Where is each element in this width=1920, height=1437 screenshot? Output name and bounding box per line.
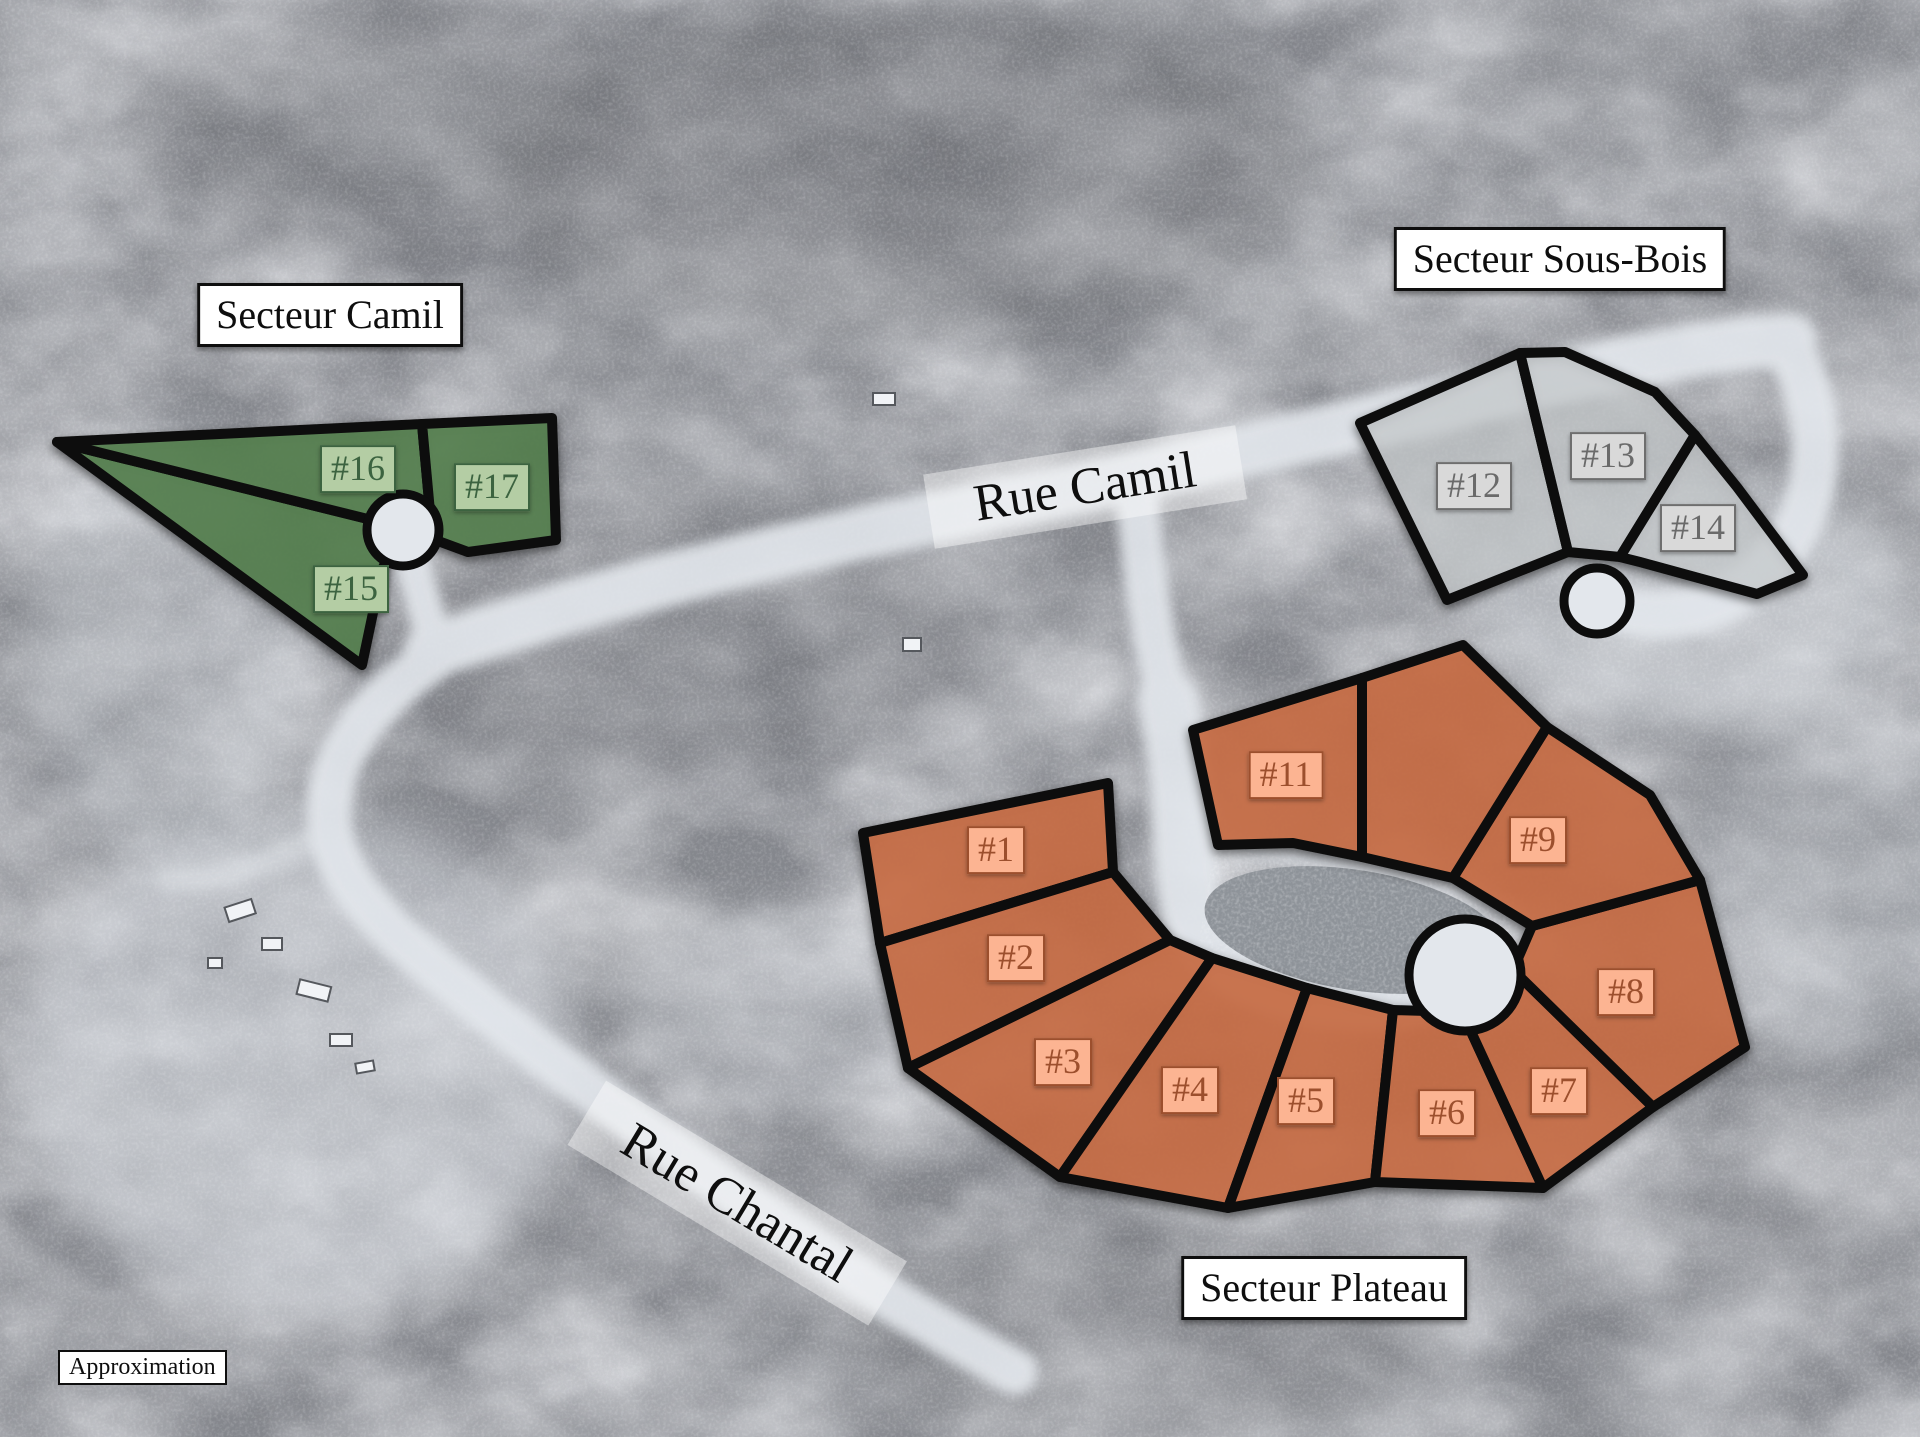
lot-label-12: #12 [1436,462,1512,510]
label-layer: #15#16#17Secteur Camil#12#13#14Secteur S… [0,0,1920,1437]
lot-label-16: #16 [320,445,396,493]
lot-label-4: #4 [1161,1066,1219,1114]
lot-label-9: #9 [1509,816,1567,864]
lot-label-14: #14 [1660,504,1736,552]
sector-name-plateau: Secteur Plateau [1181,1256,1467,1320]
sector-name-sous-bois: Secteur Sous-Bois [1394,227,1726,291]
lot-label-7: #7 [1530,1067,1588,1115]
lot-label-11: #11 [1249,751,1324,799]
road-label-rue-camil: Rue Camil [923,425,1247,548]
road-label-rue-chantal: Rue Chantal [567,1081,906,1326]
lot-label-3: #3 [1034,1038,1092,1086]
sector-name-camil: Secteur Camil [197,283,463,347]
lot-label-2: #2 [987,934,1045,982]
lot-label-5: #5 [1277,1077,1335,1125]
aerial-lot-map: #15#16#17Secteur Camil#12#13#14Secteur S… [0,0,1920,1437]
approximation-note: Approximation [58,1350,227,1385]
lot-label-1: #1 [967,826,1025,874]
lot-label-17: #17 [454,463,530,511]
lot-label-13: #13 [1570,432,1646,480]
lot-label-15: #15 [313,565,389,613]
lot-label-6: #6 [1418,1089,1476,1137]
lot-label-8: #8 [1597,968,1655,1016]
